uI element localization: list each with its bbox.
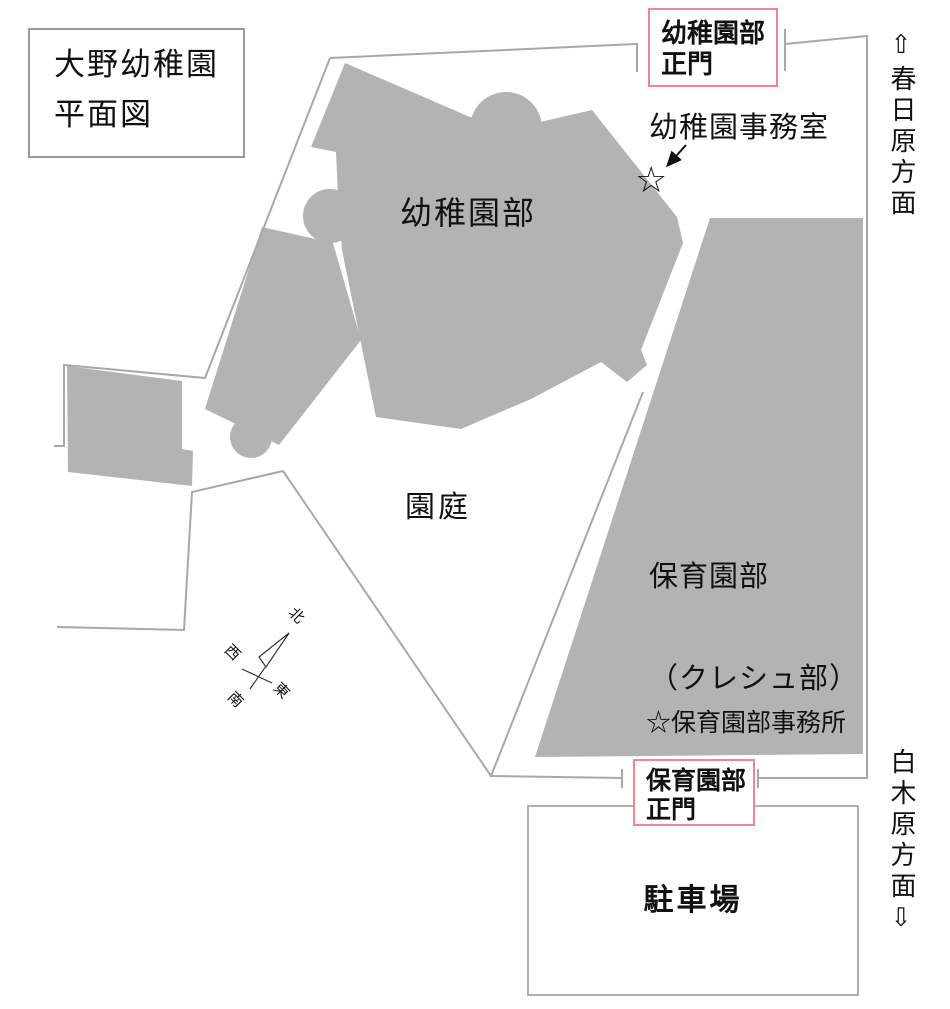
wing-round-corner-shape xyxy=(230,416,272,458)
compass-needle-head xyxy=(259,633,289,667)
garden-label: 園庭 xyxy=(405,491,471,526)
title-box: 大野幼稚園 平面図 xyxy=(28,28,245,158)
page-title-line2: 平面図 xyxy=(54,90,243,140)
kindergarten-gate-label-line1: 幼稚園部 xyxy=(661,18,776,49)
site-plan-page: 大野幼稚園 平面図 幼稚園部 正門 保育園部 正門 幼稚園部 幼稚園事務室 ☆ … xyxy=(0,0,950,1009)
west-annex-building-shape xyxy=(67,366,193,486)
office-pointer-arrow xyxy=(668,145,686,165)
parking-lot-label: 駐車場 xyxy=(528,884,858,919)
nursery-gate-label-line1: 保育園部 xyxy=(646,767,753,796)
nursery-main-gate-box: 保育園部 正門 xyxy=(633,759,755,826)
kindergarten-dome-shape xyxy=(470,92,542,164)
boundary-top xyxy=(330,44,637,58)
nursery-label-line1: 保育園部 xyxy=(649,560,859,594)
direction-sign-kasugabaru: ⇧春日原方面 xyxy=(888,30,914,220)
direction-sign-shirakibaru: 白木原方面⇩ xyxy=(888,748,914,938)
kindergarten-office-label: 幼稚園事務室 xyxy=(649,112,829,145)
nursery-gate-label-line2: 正門 xyxy=(646,796,753,825)
nursery-label-line2: （クレシュ部） xyxy=(649,662,859,696)
kindergarten-building-label: 幼稚園部 xyxy=(400,195,536,232)
kindergarten-main-gate-box: 幼稚園部 正門 xyxy=(648,8,778,87)
page-title-line1: 大野幼稚園 xyxy=(54,40,243,90)
kindergarten-southwest-wing-shape xyxy=(205,227,361,445)
boundary-southwest xyxy=(57,471,283,630)
kindergarten-gate-label-line2: 正門 xyxy=(661,49,776,80)
kindergarten-west-bulge-shape xyxy=(303,189,357,243)
nursery-office-label: ☆保育園部事務所 xyxy=(646,710,846,739)
compass-cross-axis xyxy=(242,669,272,683)
kindergarten-office-star-icon: ☆ xyxy=(635,162,667,198)
